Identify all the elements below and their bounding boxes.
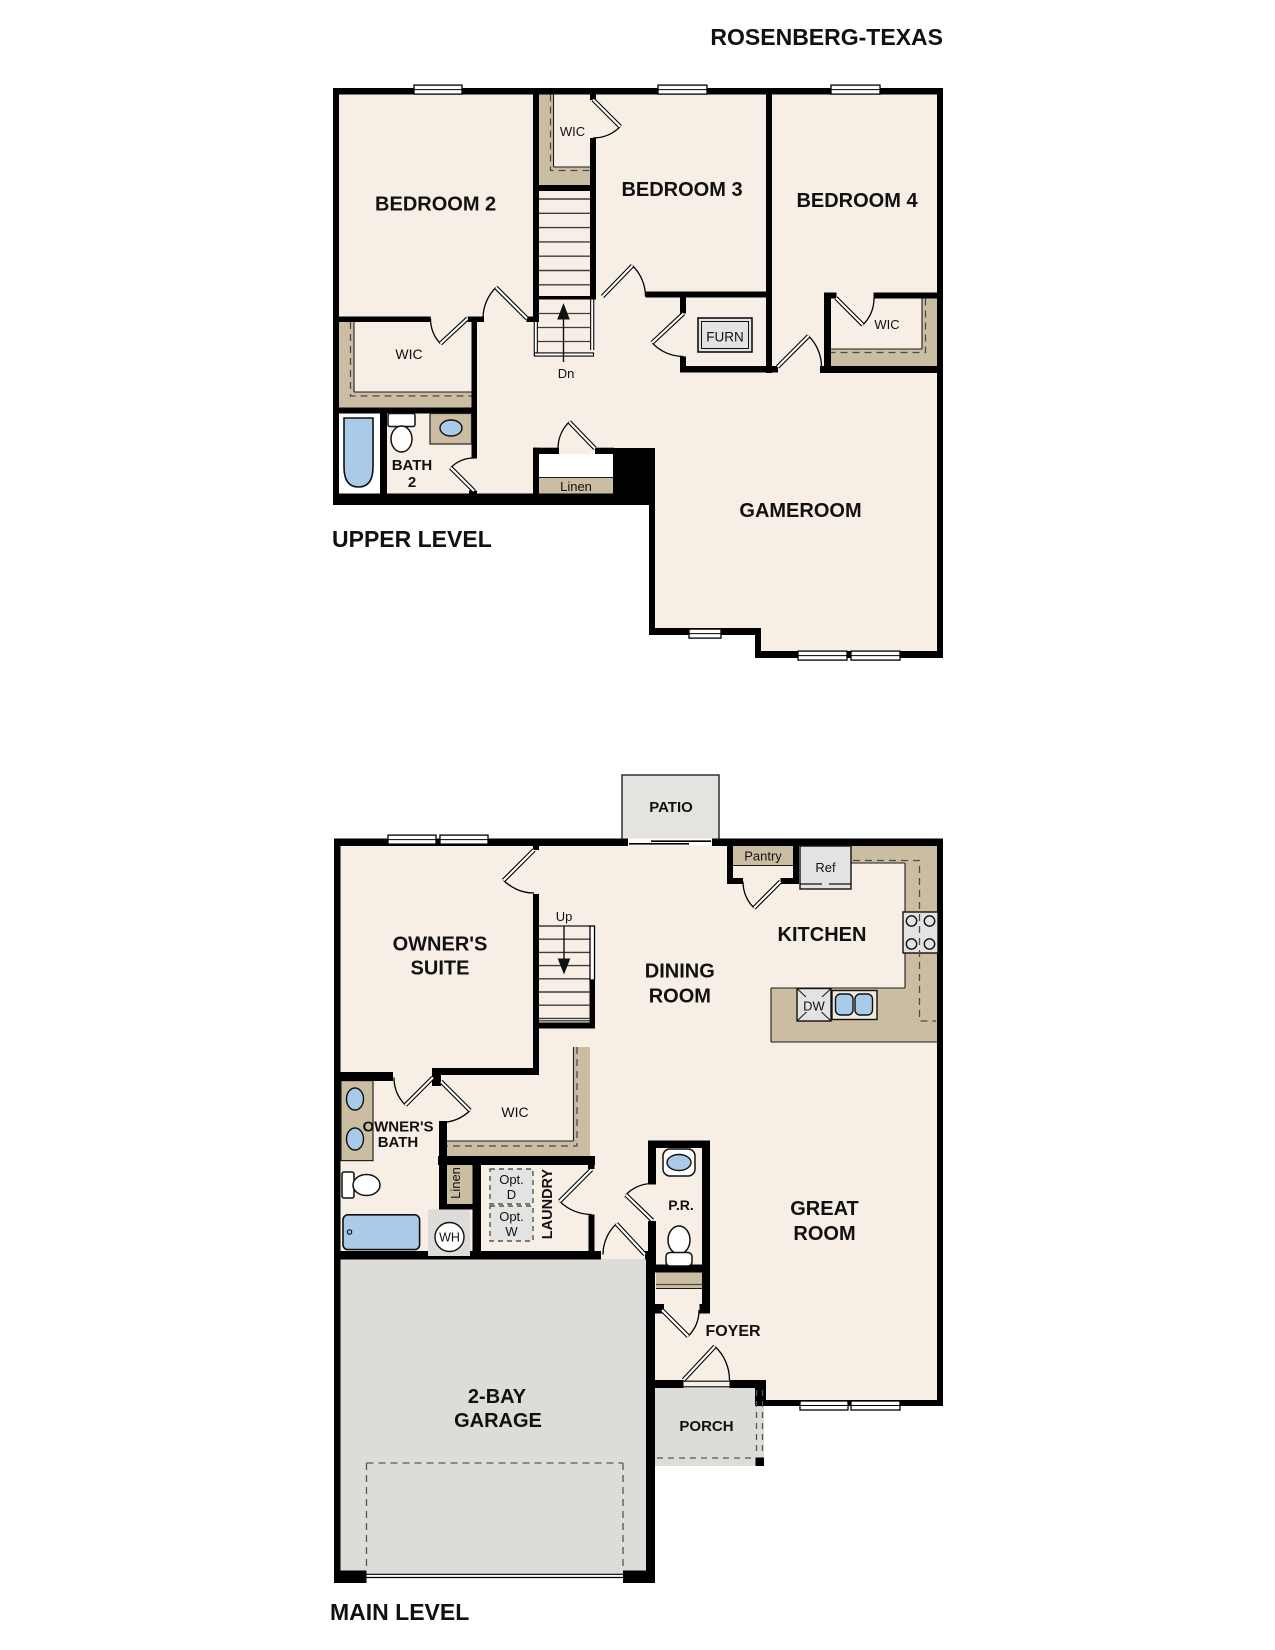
svg-text:SUITE: SUITE (411, 958, 470, 980)
svg-text:W: W (505, 1224, 518, 1239)
svg-text:BEDROOM 2: BEDROOM 2 (375, 194, 496, 216)
svg-text:BEDROOM 4: BEDROOM 4 (796, 190, 918, 212)
svg-text:OWNER'S: OWNER'S (393, 934, 488, 956)
svg-text:ROOM: ROOM (793, 1223, 855, 1245)
svg-text:GAMEROOM: GAMEROOM (739, 500, 861, 522)
svg-text:FOYER: FOYER (705, 1323, 761, 1340)
svg-text:Pantry: Pantry (744, 849, 782, 864)
svg-text:BEDROOM 3: BEDROOM 3 (621, 179, 742, 201)
svg-text:DINING: DINING (645, 961, 715, 983)
svg-text:KITCHEN: KITCHEN (778, 924, 867, 946)
svg-text:WIC: WIC (560, 124, 585, 139)
svg-text:ROSENBERG-TEXAS: ROSENBERG-TEXAS (710, 24, 943, 50)
svg-text:FURN: FURN (706, 330, 744, 345)
svg-text:P.R.: P.R. (668, 1197, 693, 1213)
svg-text:2: 2 (408, 474, 416, 491)
svg-text:ROOM: ROOM (649, 986, 711, 1008)
svg-text:DW: DW (803, 999, 825, 1014)
svg-text:WH: WH (439, 1231, 460, 1245)
svg-text:Linen: Linen (560, 479, 592, 494)
svg-text:BATH: BATH (392, 457, 433, 474)
svg-text:PATIO: PATIO (649, 799, 693, 816)
svg-text:D: D (507, 1187, 516, 1202)
svg-text:GARAGE: GARAGE (454, 1410, 542, 1432)
svg-text:GREAT: GREAT (790, 1198, 859, 1220)
svg-text:WIC: WIC (501, 1104, 528, 1120)
svg-text:Linen: Linen (448, 1167, 463, 1199)
svg-text:Opt.: Opt. (499, 1209, 524, 1224)
svg-text:LAUNDRY: LAUNDRY (540, 1169, 556, 1240)
svg-text:Opt.: Opt. (499, 1172, 524, 1187)
svg-text:WIC: WIC (874, 317, 899, 332)
svg-text:OWNER'S: OWNER'S (362, 1119, 433, 1136)
svg-text:MAIN LEVEL: MAIN LEVEL (330, 1599, 469, 1625)
svg-text:PORCH: PORCH (679, 1418, 733, 1435)
svg-text:UPPER LEVEL: UPPER LEVEL (332, 526, 492, 552)
svg-text:Ref: Ref (815, 860, 836, 875)
svg-text:Up: Up (556, 909, 573, 924)
svg-text:Dn: Dn (558, 366, 575, 381)
svg-text:BATH: BATH (378, 1134, 419, 1151)
svg-text:2-BAY: 2-BAY (468, 1386, 527, 1408)
svg-text:WIC: WIC (395, 346, 422, 362)
